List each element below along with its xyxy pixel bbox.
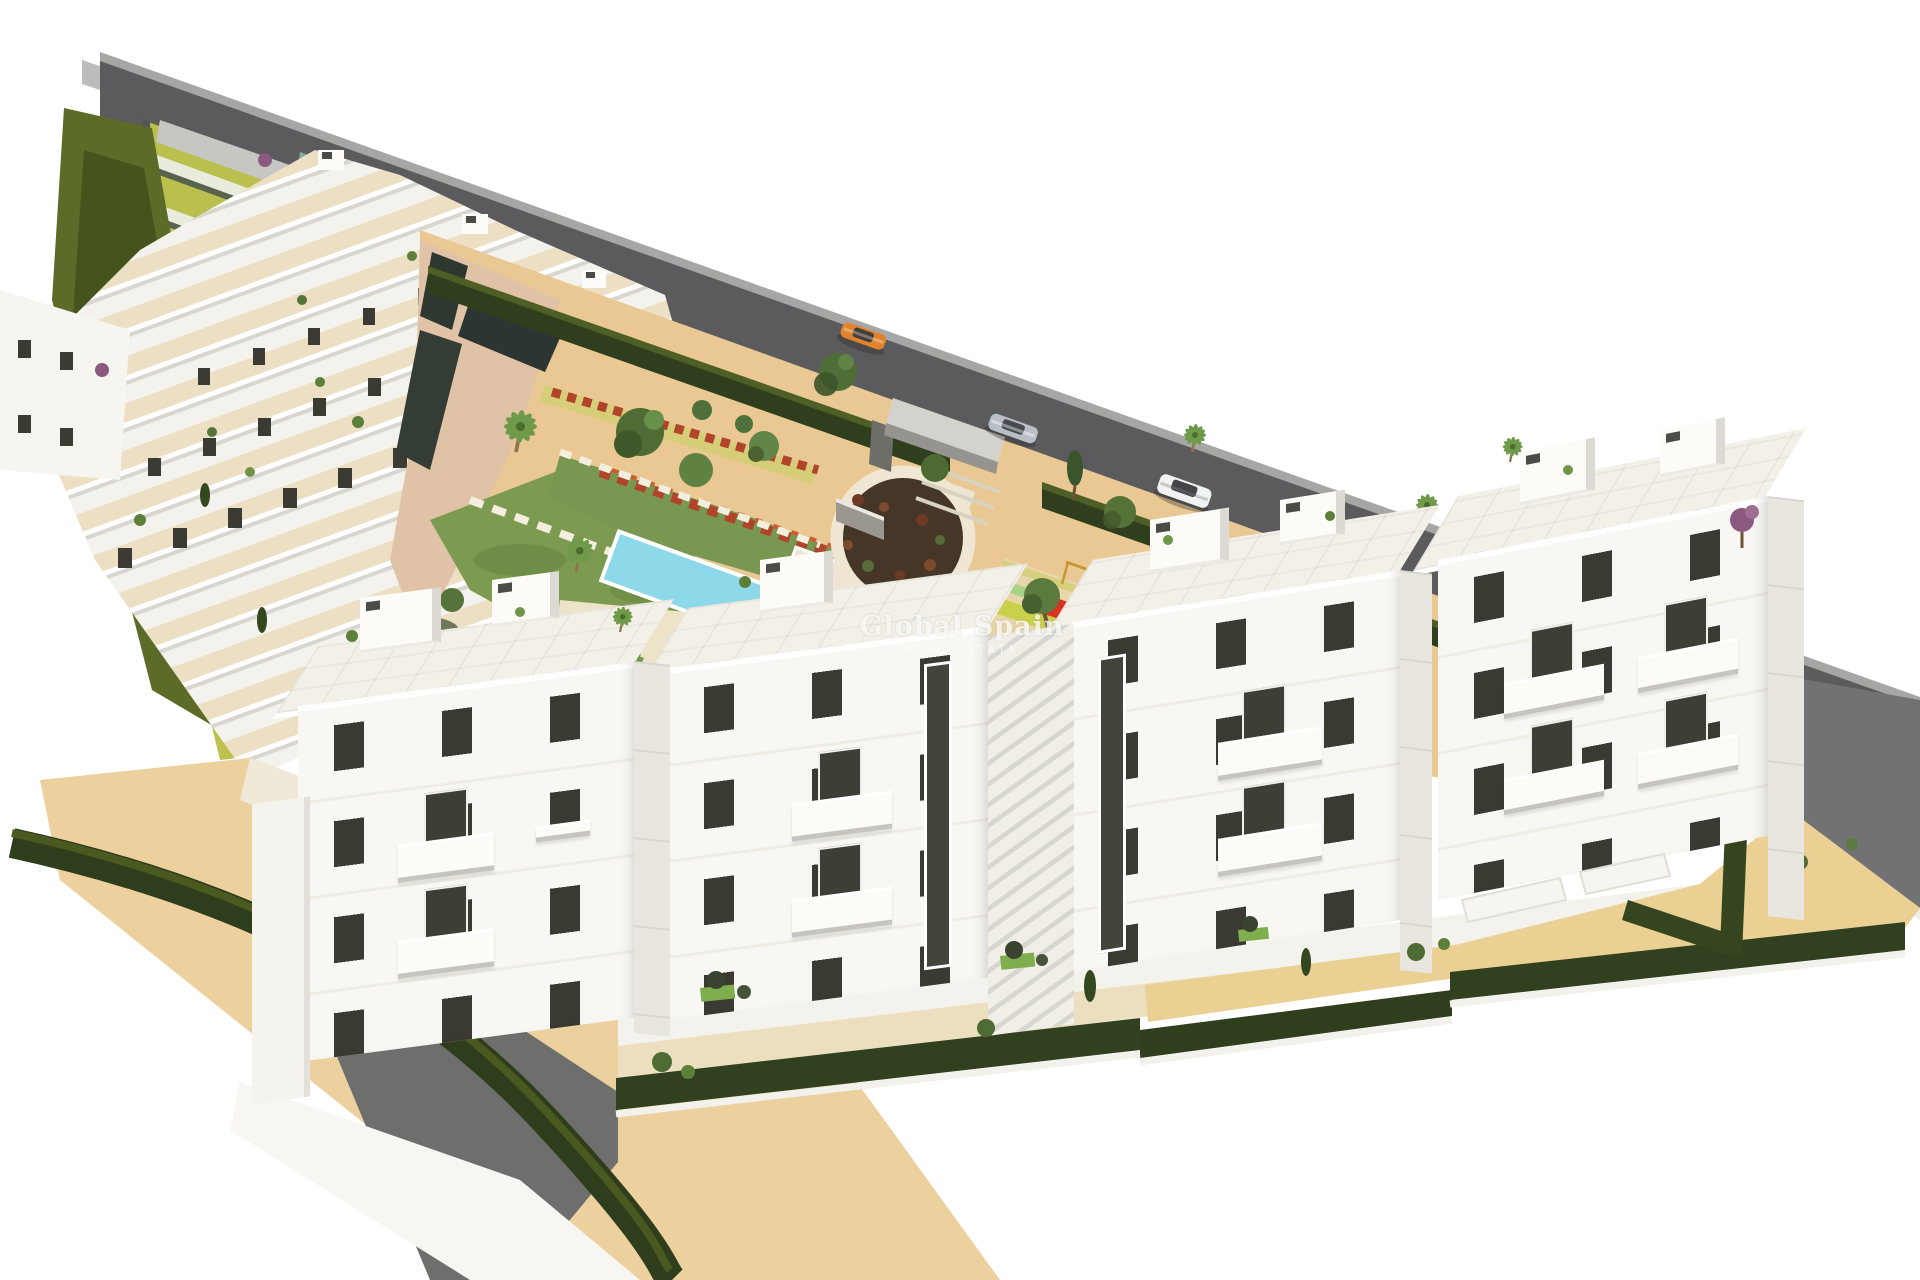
ground-floor-planters [652,916,1450,1079]
foreground-greenery [0,0,1920,1280]
rooftop-plants [346,437,1759,642]
courtyard-patio-walls [1462,854,1670,922]
architectural-render: Global Spain REAL ESTATE [0,0,1920,1280]
